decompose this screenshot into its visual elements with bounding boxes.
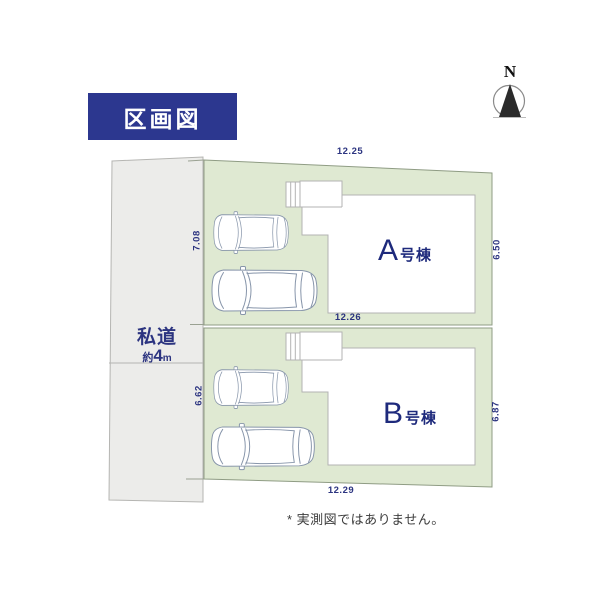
car-icon-plot-b-1 <box>214 367 289 409</box>
dimension-plot-boundary: 12.26 <box>323 312 373 323</box>
road-width-value: 4 <box>153 346 162 365</box>
compass-north-label: N <box>498 62 522 82</box>
plot-plan-page: 区画図 N 12.25 12.26 12.29 7.08 6.62 6.50 6… <box>0 0 600 600</box>
road-width-approx: 約 <box>142 352 153 364</box>
road-width-label: 約4m <box>131 346 183 366</box>
page-title: 区画図 <box>88 93 237 140</box>
dimension-plot-a-top: 12.25 <box>325 146 375 157</box>
house-b-label: B号棟 <box>345 397 475 431</box>
car-icon-plot-b-2 <box>211 424 314 470</box>
compass-north-icon <box>493 84 526 118</box>
house-b-entrance-steps <box>286 333 300 360</box>
house-a-entrance-steps <box>286 182 300 207</box>
house-a-label: A号棟 <box>340 234 470 268</box>
dimension-plot-a-right: 6.50 <box>492 230 503 270</box>
car-icon-plot-a-2 <box>212 267 317 315</box>
road-name-label: 私道 <box>131 322 183 349</box>
disclaimer-note: * 実測図ではありません。 <box>287 509 445 528</box>
road-width-unit: m <box>163 353 172 364</box>
dimension-plot-b-bottom: 12.29 <box>316 485 366 496</box>
dimension-plot-a-left: 7.08 <box>192 221 203 261</box>
dimension-plot-b-right: 6.87 <box>491 392 502 432</box>
dimension-plot-b-left: 6.62 <box>194 376 205 416</box>
car-icon-plot-a-1 <box>214 212 289 254</box>
